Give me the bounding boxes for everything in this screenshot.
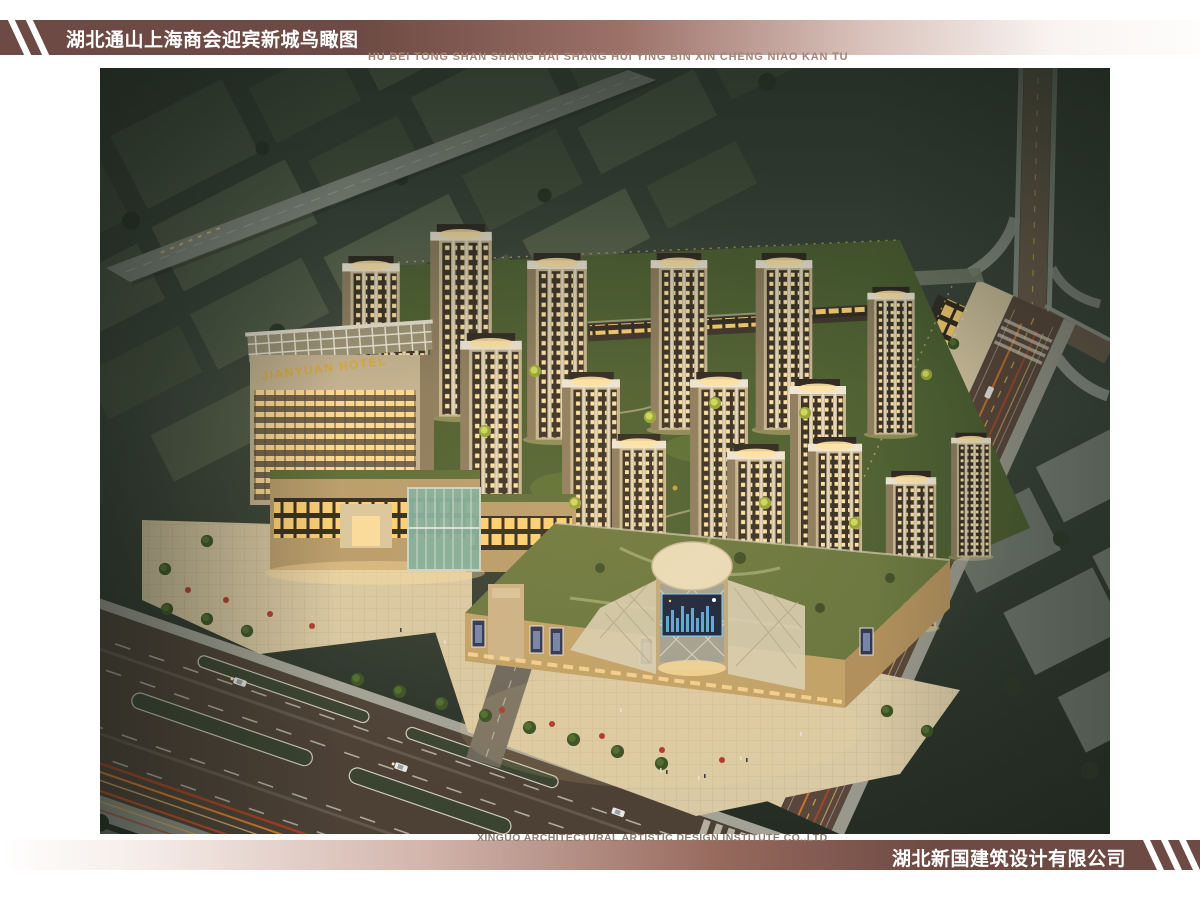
footer-corner-stripe [1161, 840, 1182, 870]
page-title: 湖北通山上海商会迎宾新城鸟瞰图 [66, 25, 359, 52]
design-institute-credit-en: XINGUO ARCHITECTURAL ARTISTIC DESIGN INS… [477, 832, 828, 844]
footer-corner-stripe [1143, 840, 1164, 870]
header-corner-stripe [26, 20, 49, 55]
footer-corner-stripe [1179, 840, 1200, 870]
aerial-render: JIANYUAN HOTEL [100, 68, 1110, 834]
page-subtitle-pinyin: HU BEI TONG SHAN SHANG HAI SHANG HUI YIN… [368, 51, 848, 63]
atmosphere-overlays [100, 68, 1110, 834]
company-name-cn: 湖北新国建筑设计有限公司 [892, 844, 1126, 871]
